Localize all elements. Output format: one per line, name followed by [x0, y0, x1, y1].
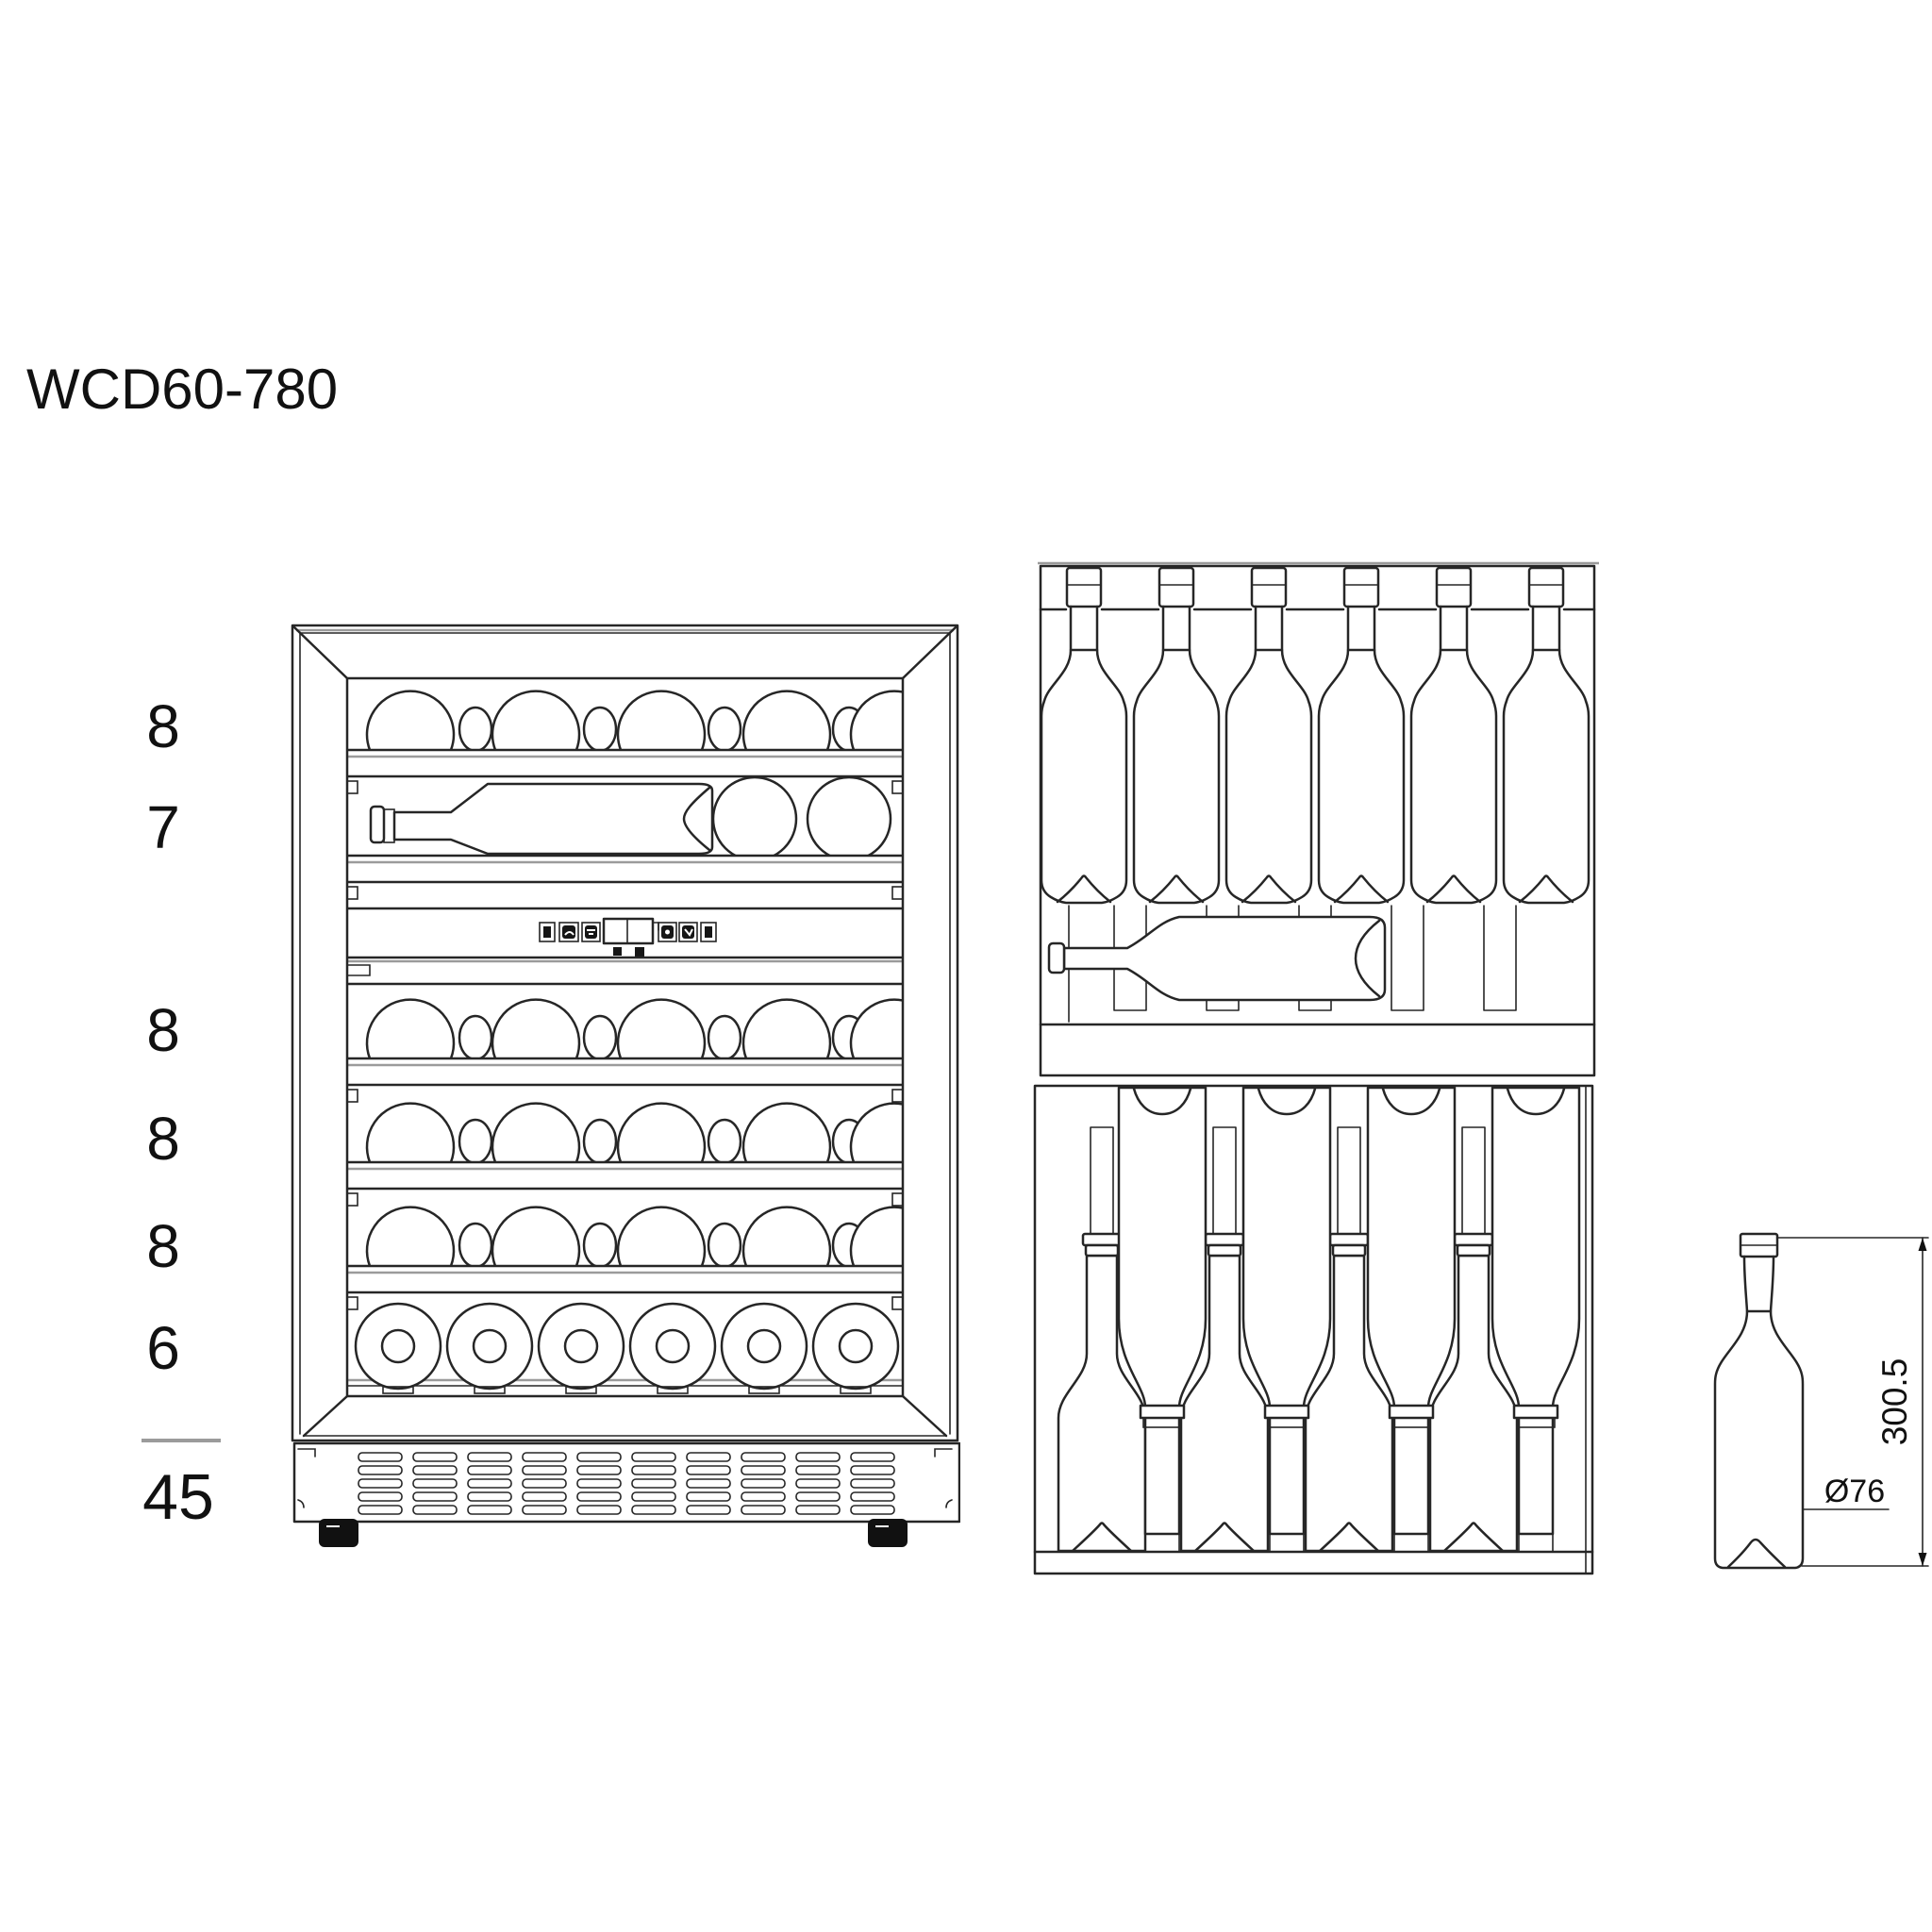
- total-divider-line: [142, 1439, 221, 1442]
- right-foot: [868, 1519, 908, 1547]
- plinth: [294, 1443, 959, 1522]
- left-foot: [319, 1519, 358, 1547]
- shelf-count-5: 8: [107, 1216, 220, 1276]
- shelf-count-1: 8: [107, 696, 220, 757]
- shelf-count-4: 8: [107, 1108, 220, 1169]
- display-indicator: [635, 947, 644, 957]
- page: WCD60-780 8 7 8 8 8 6 45: [0, 0, 1932, 1932]
- bottle-outline: [1715, 1234, 1803, 1568]
- shelf-count-3: 8: [107, 1000, 220, 1060]
- wine-cooler-front-view: [291, 623, 960, 1552]
- vent-grille: [358, 1453, 894, 1514]
- height-dimension-label: 300.5: [1875, 1358, 1914, 1446]
- display-indicator: [613, 947, 622, 956]
- bottle-dimension-drawing: Ø76 300.5: [1698, 1222, 1932, 1585]
- shelf-top-view: [1038, 559, 1599, 1080]
- total-count: 45: [122, 1465, 235, 1529]
- shelf-count-2: 7: [107, 797, 220, 858]
- shelf-count-6: 6: [107, 1318, 220, 1378]
- model-title: WCD60-780: [26, 357, 338, 422]
- interleaved-shelf-view: [1030, 1080, 1596, 1578]
- diameter-dimension-label: Ø76: [1824, 1474, 1885, 1509]
